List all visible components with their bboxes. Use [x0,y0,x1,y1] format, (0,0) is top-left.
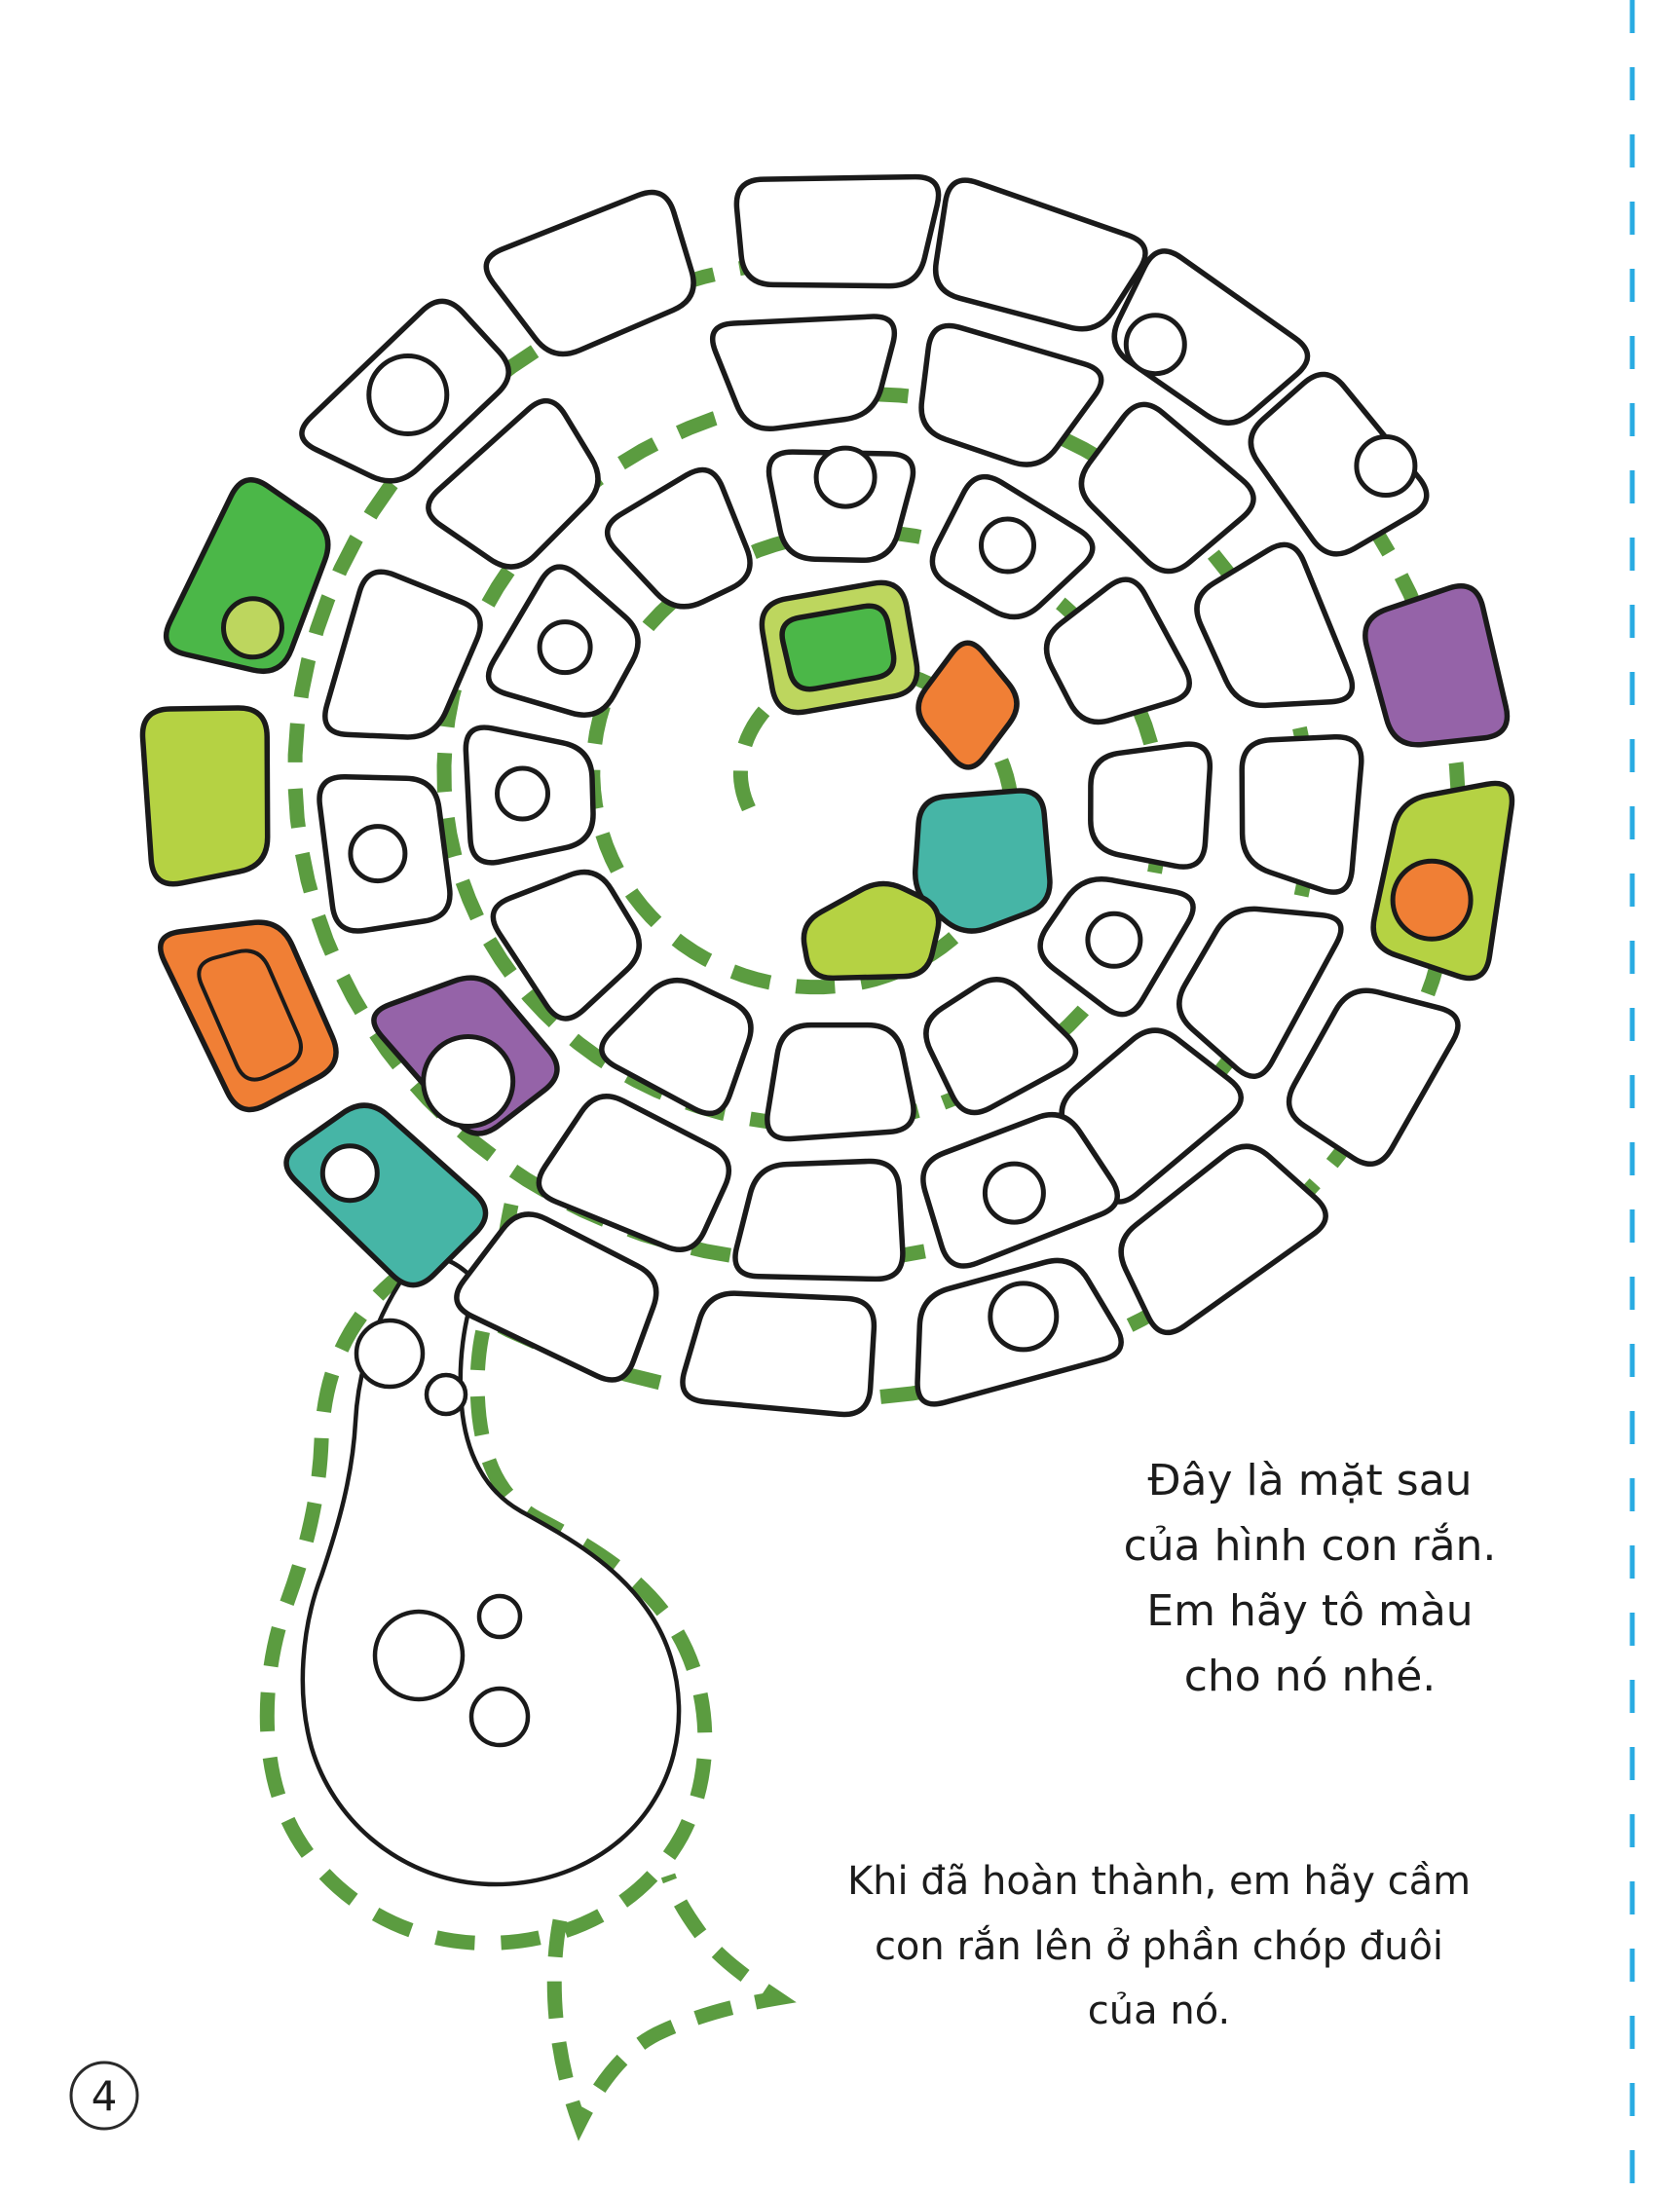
snake-scale [1081,404,1253,571]
scale-spot [1357,437,1415,496]
instruction-line: Khi đã hoàn thành, em hãy cầm [847,1859,1471,1904]
snake-scale [735,1161,903,1279]
center-orange [918,643,1017,767]
snake-scale [486,192,693,353]
snake-scale [736,177,938,286]
snake-scale [493,873,639,1019]
coloring-book-page: Đây là mặt sau của hình con rắn. Em hãy … [0,0,1680,2193]
snake-scale [608,469,750,606]
snake-scale [767,1025,914,1139]
snake-scales [142,177,1512,1415]
snake-scale [683,1293,874,1414]
snake-scale [142,708,267,884]
head-spot [427,1375,466,1414]
page-number: 4 [92,2072,118,2120]
scale-spot [985,1164,1043,1222]
snake-scale [539,1096,728,1249]
snake-scale [713,316,895,428]
scale-spot [816,448,875,506]
scale-spot [224,599,282,657]
snake-scale [1242,737,1362,892]
snake-scale [286,1105,486,1284]
instruction-line: Đây là mặt sau [1147,1456,1472,1505]
page-number-badge: 4 [71,2063,137,2129]
instruction-line: của hình con rắn. [1124,1521,1497,1571]
instruction-line: cho nó nhé. [1184,1652,1437,1701]
instruction-block-2: Khi đã hoàn thành, em hãy cầm con rắn lê… [847,1859,1471,2033]
snake-scale [457,1214,656,1380]
scale-spot [1393,861,1471,939]
snake-coloring-figure: Đây là mặt sau của hình con rắn. Em hãy … [0,0,1680,2193]
snake-scale [325,572,480,737]
scale-spot [540,622,590,673]
snake-scale [936,180,1145,329]
head-spot [471,1689,528,1745]
scale-spot [990,1283,1057,1350]
head-spot [356,1320,423,1387]
scale-spot [1126,316,1184,374]
center-lime [803,883,938,978]
snake-scale [1289,990,1458,1164]
scale-spot [498,768,548,819]
instruction-line: Em hãy tô màu [1146,1586,1473,1636]
scale-spot [322,1146,377,1201]
snake-scale [1365,586,1508,745]
instruction-line: của nó. [1088,1989,1230,2033]
scale-spot [351,827,405,881]
scale-spot [369,356,447,434]
scale-spot [1088,913,1140,966]
head-spot [375,1612,463,1699]
instruction-line: con rắn lên ở phần chóp đuôi [875,1924,1443,1969]
tail-tip [782,606,894,688]
snake-forked-tail-dashed [554,1876,777,2123]
instruction-block-1: Đây là mặt sau của hình con rắn. Em hãy … [1124,1456,1497,1701]
snake-scale [926,980,1076,1113]
snake-scale [1091,744,1211,867]
head-spot [479,1596,520,1637]
scale-spot [982,519,1034,572]
scale-spot [424,1037,513,1127]
snake-scale [602,981,751,1114]
